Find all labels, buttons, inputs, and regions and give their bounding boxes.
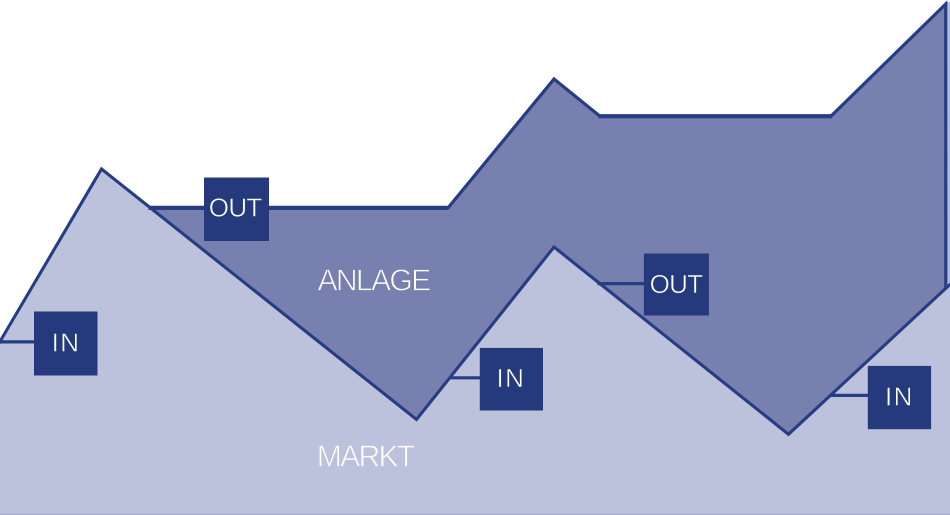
svg-text:MARKT: MARKT (317, 440, 415, 473)
svg-text:IN: IN (496, 363, 525, 393)
svg-text:ANLAGE: ANLAGE (318, 265, 431, 298)
svg-text:OUT: OUT (650, 269, 704, 299)
svg-text:OUT: OUT (209, 193, 263, 223)
svg-text:IN: IN (885, 382, 914, 412)
svg-text:IN: IN (52, 328, 81, 358)
